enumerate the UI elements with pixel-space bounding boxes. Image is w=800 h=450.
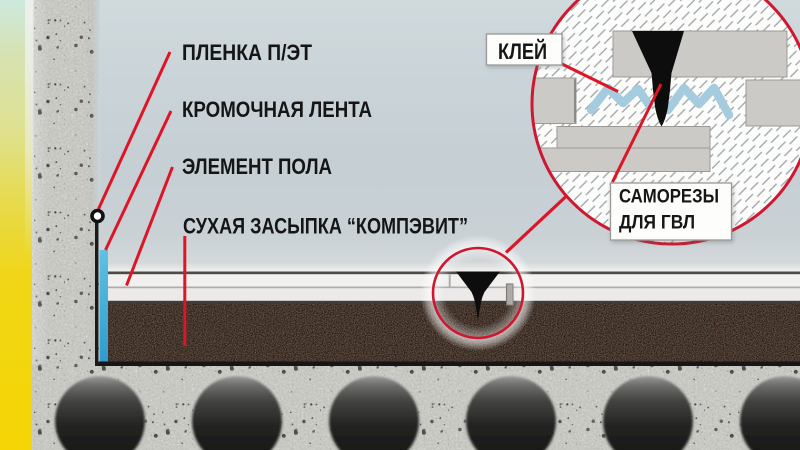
svg-text:САМОРЕЗЫ: САМОРЕЗЫ xyxy=(619,186,719,208)
svg-text:ЭЛЕМЕНТ ПОЛА: ЭЛЕМЕНТ ПОЛА xyxy=(182,154,332,179)
svg-text:КРОМОЧНАЯ ЛЕНТА: КРОМОЧНАЯ ЛЕНТА xyxy=(182,97,372,122)
svg-text:КЛЕЙ: КЛЕЙ xyxy=(498,39,547,64)
svg-text:ПЛЕНКА П/ЭТ: ПЛЕНКА П/ЭТ xyxy=(182,40,312,65)
svg-text:ДЛЯ ГВЛ: ДЛЯ ГВЛ xyxy=(619,212,695,234)
svg-text:СУХАЯ ЗАСЫПКА “КОМПЭВИТ”: СУХАЯ ЗАСЫПКА “КОМПЭВИТ” xyxy=(183,214,468,239)
